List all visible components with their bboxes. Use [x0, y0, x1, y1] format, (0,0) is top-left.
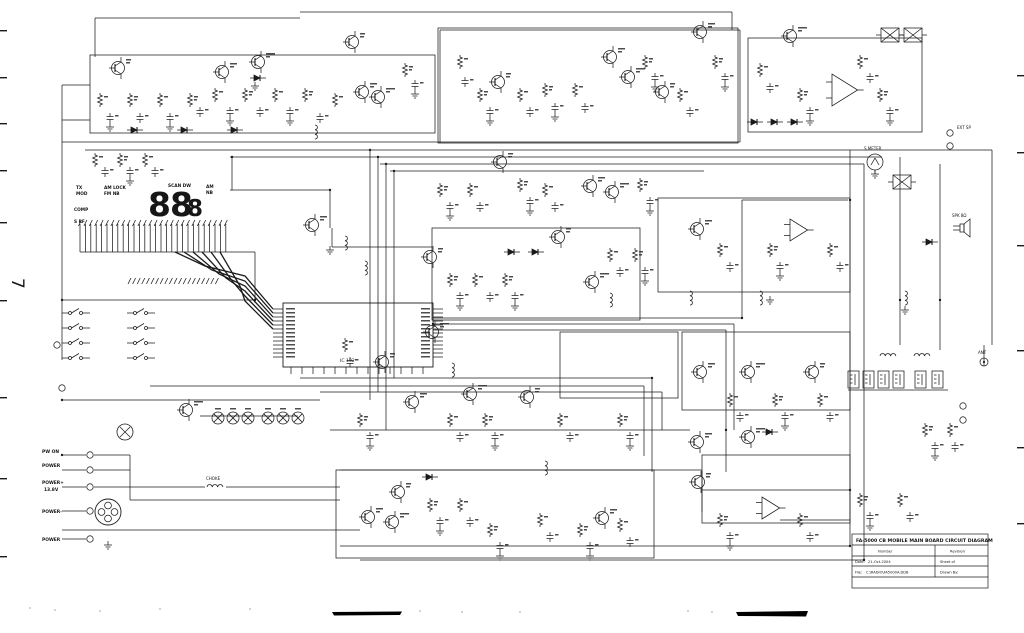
resistor-symbol: [758, 63, 763, 77]
switch-symbol: [80, 312, 83, 315]
component-label-mark: [779, 396, 783, 398]
resistor-symbol: [128, 93, 133, 107]
component-label-mark: [194, 401, 203, 403]
indicator-tx: TX: [76, 185, 83, 191]
wire: [206, 278, 209, 284]
connector-pin-circle: [960, 417, 966, 423]
component-label-mark: [406, 486, 410, 488]
component-label-mark: [960, 444, 964, 446]
page-number: 7: [7, 278, 27, 289]
scan-speck: [519, 611, 521, 613]
switch-symbol: [80, 327, 83, 330]
wire: [174, 278, 177, 284]
component-label-mark: [494, 529, 497, 531]
component-label-mark: [954, 426, 958, 428]
switch-symbol: [80, 357, 83, 360]
resistors: [93, 55, 958, 537]
component-label-mark: [724, 246, 728, 248]
component-label-mark: [164, 96, 168, 98]
component-label-mark: [478, 388, 482, 390]
field-revision: Revision: [950, 550, 965, 554]
wire: [625, 79, 631, 83]
indicator-am-lock: AM LOCK: [104, 185, 126, 191]
inductor-symbol: [610, 293, 612, 307]
component-label-mark: [438, 251, 442, 253]
component-label-mark: [440, 326, 444, 328]
mcu-box: [283, 303, 433, 367]
component-label-mark: [421, 352, 430, 354]
component-label-mark: [706, 476, 710, 478]
component-label-mark: [286, 312, 295, 314]
resistor-symbol: [243, 88, 248, 102]
component-label-mark: [730, 75, 734, 77]
component-label-mark: [624, 416, 628, 418]
component-label-mark: [134, 99, 137, 101]
component-label-mark: [598, 177, 605, 179]
component-label-mark: [390, 353, 395, 355]
component-label-mark: [864, 496, 868, 498]
component-label-mark: [309, 91, 313, 93]
component-label-mark: [464, 58, 468, 60]
component-label-mark: [756, 428, 765, 430]
resistor-symbol: [898, 493, 903, 507]
wire: [695, 484, 701, 488]
edge-mark: [0, 397, 7, 398]
wire: [115, 62, 121, 66]
component-label-mark: [454, 416, 458, 418]
component-label-mark: [295, 408, 301, 410]
component-label-mark: [566, 231, 570, 233]
wire: [72, 309, 80, 314]
resistor-symbol: [118, 153, 123, 167]
component-label-mark: [884, 94, 887, 96]
section-box: [438, 28, 738, 143]
diode-symbol: [254, 75, 260, 81]
din-pin: [111, 509, 118, 516]
section-box: [658, 198, 850, 292]
component-label-mark: [325, 115, 329, 117]
component-label-mark: [875, 75, 879, 77]
field-number: Number: [878, 550, 893, 554]
component-label-mark: [639, 254, 642, 256]
component-label-mark: [735, 534, 739, 536]
edge-mark: [1017, 75, 1024, 76]
wire: [160, 278, 163, 284]
component-label-mark: [804, 516, 808, 518]
din-pin: [105, 502, 112, 509]
resistor-symbol: [678, 88, 683, 102]
diode-symbol: [426, 474, 432, 480]
component-label-mark: [160, 169, 164, 171]
junction-dot: [849, 545, 851, 547]
resistor-symbol: [638, 178, 643, 192]
wire: [365, 519, 371, 523]
component-label-mark: [215, 408, 221, 410]
component-label-mark: [804, 94, 807, 96]
component-label-mark: [875, 514, 879, 516]
field-date-value: 21-Oct-2004: [868, 560, 891, 564]
wire: [192, 278, 195, 284]
component-label-mark: [509, 276, 513, 278]
wire: [555, 231, 561, 235]
connector-pin-circle: [59, 385, 65, 391]
wire: [156, 278, 159, 284]
component-label-mark: [421, 344, 430, 346]
junction-dot: [393, 170, 395, 172]
resistor-symbol: [618, 413, 623, 427]
component-label-mark: [644, 184, 647, 186]
schematic-page: 7 TX MOD AM LOCK FM NB COMP S RF SCAN DW…: [0, 0, 1024, 633]
diode-symbol: [771, 119, 777, 125]
component-label-mark: [798, 27, 807, 29]
component-label-mark: [774, 246, 778, 248]
component-label-mark: [386, 88, 395, 90]
edge-mark: [0, 30, 7, 31]
component-label-mark: [524, 181, 528, 183]
component-label-mark: [635, 434, 639, 436]
scan-speck: [99, 610, 101, 612]
wire: [524, 399, 530, 403]
component-label-mark: [286, 336, 295, 338]
component-label-mark: [364, 419, 367, 421]
scan-speck: [29, 607, 31, 609]
component-label-mark: [520, 294, 524, 296]
resistor-symbol: [518, 88, 523, 102]
connector-pin-circle: [87, 536, 93, 542]
component-label-mark: [684, 91, 688, 93]
edge-mark: [0, 170, 7, 171]
wire: [467, 396, 473, 400]
edge-marks: [0, 30, 1024, 557]
component-label-mark: [235, 109, 239, 111]
component-label-mark: [618, 51, 622, 53]
edge-mark: [1017, 350, 1024, 351]
switch-symbol: [80, 342, 83, 345]
indicator-s-rf: S RF: [74, 219, 85, 225]
wire: [375, 99, 381, 103]
wire: [599, 512, 605, 516]
field-file-value: C:\RADIO\FA5000A.DDB: [866, 571, 909, 575]
title-block: FA-5000 CB MOBILE MAIN BOARD CIRCUIT DIA…: [852, 534, 993, 588]
component-label-mark: [706, 473, 711, 475]
component-label-mark: [286, 320, 295, 322]
wire: [309, 227, 315, 231]
resistor-symbol: [358, 413, 363, 427]
diode-symbol: [231, 127, 237, 133]
ceramic-filters: [876, 28, 927, 189]
resistor-symbol: [948, 423, 953, 437]
switch-symbol: [69, 357, 72, 360]
scan-speck: [711, 611, 713, 613]
wire: [607, 59, 613, 63]
scan-speck: [249, 608, 251, 610]
circuit-schematic: 7 TX MOD AM LOCK FM NB COMP S RF SCAN DW…: [0, 0, 1024, 633]
component-label-mark: [600, 276, 604, 278]
resistor-symbol: [438, 183, 443, 197]
wire: [137, 354, 145, 359]
component-label-mark: [370, 86, 374, 88]
component-label-mark: [705, 220, 712, 222]
component-label-mark: [465, 294, 469, 296]
component-label-mark: [544, 516, 548, 518]
label-voltage: 13.8V: [44, 487, 59, 493]
resistor-symbol: [143, 153, 148, 167]
resistor-symbol: [333, 93, 338, 107]
component-label-mark: [464, 501, 468, 503]
wire: [349, 44, 355, 48]
scan-speck: [54, 609, 56, 611]
wire: [787, 30, 793, 34]
indicator-fm-nb: FM NB: [104, 191, 120, 197]
din-connector-symbol: [95, 499, 121, 525]
wire: [183, 412, 189, 416]
label-power-plus: POWER+: [42, 480, 64, 486]
component-label-mark: [386, 91, 390, 93]
switch-symbol: [145, 312, 148, 315]
resistor-symbol: [858, 55, 863, 69]
diode-symbol: [532, 249, 538, 255]
component-label-mark: [636, 68, 645, 70]
junction-dot: [377, 156, 379, 158]
component-label-mark: [376, 511, 380, 513]
edge-mark: [1017, 152, 1024, 153]
component-label-mark: [245, 408, 251, 410]
meter-symbol: [867, 154, 883, 170]
field-file-label: File:: [855, 571, 862, 575]
component-label-mark: [655, 199, 659, 201]
component-label-mark: [445, 519, 449, 521]
inductor-symbol: [452, 363, 454, 377]
component-label-mark: [724, 516, 728, 518]
resistor-symbol: [468, 183, 473, 197]
component-label-mark: [506, 73, 511, 75]
if-can-symbol: [915, 371, 926, 388]
component-label-mark: [756, 363, 765, 365]
component-label-mark: [124, 159, 127, 161]
component-label-mark: [320, 216, 327, 218]
mcu: [273, 303, 443, 374]
component-label-mark: [708, 26, 712, 28]
inductors: [207, 125, 930, 487]
wire: [219, 66, 225, 70]
diode-symbol: [766, 429, 772, 435]
component-label-mark: [708, 23, 715, 25]
component-label-mark: [249, 94, 252, 96]
component-label-mark: [590, 105, 594, 107]
component-label-mark: [286, 332, 295, 334]
wire: [409, 396, 415, 400]
wire: [395, 486, 401, 490]
component-label-mark: [834, 246, 838, 248]
inductor-symbol: [315, 125, 317, 139]
resistor-symbol: [518, 178, 523, 192]
wire: [497, 156, 503, 160]
opamp-symbol: [762, 497, 780, 519]
power-connector-labels: PW ON POWER POWER+ 13.8V POWER- POWER CH…: [42, 449, 221, 543]
component-label-mark: [286, 316, 295, 318]
connector-pin-circle: [87, 467, 93, 473]
resistor-symbol: [818, 393, 823, 407]
wire: [389, 516, 395, 520]
component-label-mark: [884, 91, 888, 93]
wire: [375, 91, 381, 95]
component-label-mark: [524, 91, 528, 93]
component-label-mark: [475, 519, 479, 521]
junction-dot: [849, 199, 851, 201]
component-label-mark: [494, 526, 498, 528]
component-label-mark: [360, 33, 365, 35]
channel-digits: 88: [148, 185, 192, 224]
wire: [389, 524, 395, 528]
section-box: [336, 470, 654, 558]
edge-mark: [0, 123, 7, 124]
wire: [467, 388, 473, 392]
if-can-symbol: [932, 371, 943, 388]
component-label-mark: [421, 340, 430, 342]
component-label-mark: [895, 109, 899, 111]
if-can-symbol: [893, 371, 904, 388]
component-label-mark: [644, 181, 648, 183]
resistor-symbol: [158, 93, 163, 107]
component-label-mark: [286, 340, 295, 342]
component-label-mark: [420, 82, 424, 84]
wire: [197, 278, 200, 284]
wire: [599, 520, 605, 524]
wire: [745, 431, 751, 435]
resistor-symbol: [428, 498, 433, 512]
component-label-mark: [135, 169, 139, 171]
component-label-mark: [824, 396, 828, 398]
scan-speck: [159, 608, 161, 610]
field-drawn-by: Drawn By:: [940, 571, 958, 575]
component-label-mark: [479, 276, 483, 278]
junction-dot: [231, 156, 233, 158]
resistor-symbol: [448, 413, 453, 427]
wire: [809, 374, 815, 378]
component-label-mark: [584, 526, 588, 528]
component-label-mark: [524, 184, 527, 186]
wire: [202, 278, 205, 284]
component-label-mark: [194, 404, 198, 406]
component-label-mark: [835, 414, 839, 416]
component-label-mark: [509, 279, 512, 281]
component-label-mark: [650, 269, 654, 271]
scan-speck: [461, 611, 463, 613]
component-label-mark: [230, 63, 237, 65]
component-label-mark: [489, 419, 492, 421]
component-label-mark: [420, 393, 427, 395]
connector-pin-circle: [947, 143, 953, 149]
resistor-symbol: [213, 88, 218, 102]
component-label-mark: [764, 66, 768, 68]
wire: [72, 354, 80, 359]
component-label-mark: [249, 91, 253, 93]
connector-pin-circle: [960, 403, 966, 409]
component-label-mark: [434, 504, 437, 506]
component-label-mark: [500, 434, 504, 436]
component-label-mark: [915, 514, 919, 516]
component-label-mark: [549, 86, 553, 88]
resistor-symbol: [188, 93, 193, 107]
component-label-mark: [440, 323, 449, 325]
component-label-mark: [484, 91, 488, 93]
component-label-mark: [505, 544, 509, 546]
wire: [587, 188, 593, 192]
component-label-mark: [286, 324, 295, 326]
scan-streak: [332, 612, 402, 616]
diode-symbol: [181, 127, 187, 133]
wire: [589, 284, 595, 288]
component-label-mark: [624, 521, 628, 523]
label-choke: CHOKE: [206, 476, 221, 481]
junction-dot: [899, 299, 901, 301]
switch-symbol: [69, 312, 72, 315]
resistor-symbol: [858, 493, 863, 507]
junction-dot: [741, 317, 743, 319]
if-cans: [848, 371, 943, 388]
resistor-symbol: [558, 413, 563, 427]
component-label-mark: [724, 519, 727, 521]
connector-pin-circle: [87, 484, 93, 490]
component-label-mark: [564, 416, 568, 418]
wire: [359, 94, 365, 98]
resistor-symbol: [618, 518, 623, 532]
component-label-mark: [785, 264, 789, 266]
key-switches: [62, 309, 155, 360]
wire: [395, 494, 401, 498]
component-label-mark: [194, 99, 197, 101]
switch-symbol: [134, 327, 137, 330]
wire: [694, 231, 700, 235]
component-label-mark: [719, 61, 722, 63]
resistor-symbol: [403, 63, 408, 77]
component-label-mark: [421, 308, 430, 310]
resistor-symbol: [878, 88, 883, 102]
component-label-mark: [495, 294, 499, 296]
component-label-mark: [110, 169, 114, 171]
wire: [349, 36, 355, 40]
component-label-mark: [286, 344, 295, 346]
component-label-mark: [555, 534, 559, 536]
component-label-mark: [420, 396, 424, 398]
wire: [409, 404, 415, 408]
inductor-symbol: [690, 291, 692, 305]
wire: [137, 278, 140, 284]
opamps: [756, 74, 864, 519]
component-label-mark: [279, 91, 283, 93]
wire: [146, 278, 149, 284]
lcd-display: TX MOD AM LOCK FM NB COMP S RF SCAN DW A…: [74, 183, 214, 225]
resistor-symbol: [633, 248, 638, 262]
wire: [183, 278, 186, 284]
section-box: [560, 332, 678, 398]
resistor-symbol: [718, 513, 723, 527]
connector-pin-circle: [87, 508, 93, 514]
edge-mark: [0, 222, 7, 223]
resistor-symbol: [458, 55, 463, 69]
scan-artifacts: [29, 607, 808, 616]
din-connector: [95, 499, 121, 525]
label-power-1: POWER: [42, 463, 61, 469]
if-can-symbol: [878, 371, 889, 388]
switch-symbol: [145, 357, 148, 360]
component-label-mark: [620, 183, 629, 185]
component-label-mark: [454, 276, 458, 278]
component-label-mark: [549, 186, 553, 188]
wire: [379, 356, 385, 360]
indicator-nb: NB: [206, 190, 213, 196]
junction-dot: [725, 429, 727, 431]
